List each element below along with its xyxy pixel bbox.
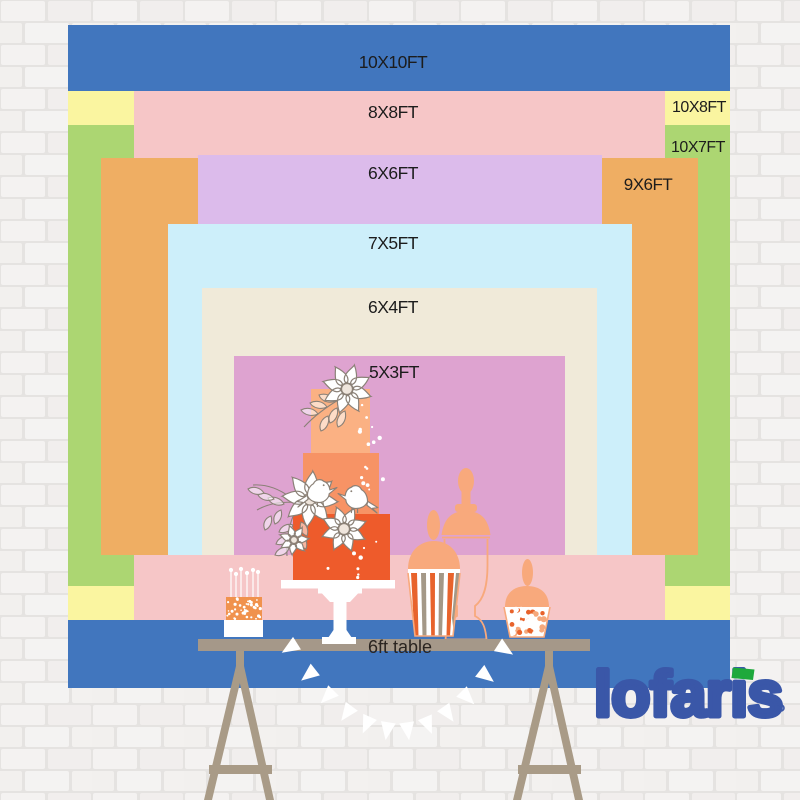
svg-text:10X8FT: 10X8FT: [672, 99, 727, 116]
svg-text:5X3FT: 5X3FT: [369, 362, 420, 382]
svg-text:8X8FT: 8X8FT: [368, 102, 419, 122]
svg-text:6X6FT: 6X6FT: [368, 163, 419, 183]
svg-text:10X7FT: 10X7FT: [671, 139, 726, 156]
svg-text:6X4FT: 6X4FT: [368, 297, 419, 317]
svg-text:10X10FT: 10X10FT: [359, 52, 428, 72]
svg-text:9X6FT: 9X6FT: [624, 175, 673, 194]
svg-text:lofaris: lofaris: [594, 658, 783, 730]
svg-text:6ft table: 6ft table: [368, 637, 432, 657]
svg-text:7X5FT: 7X5FT: [368, 233, 419, 253]
